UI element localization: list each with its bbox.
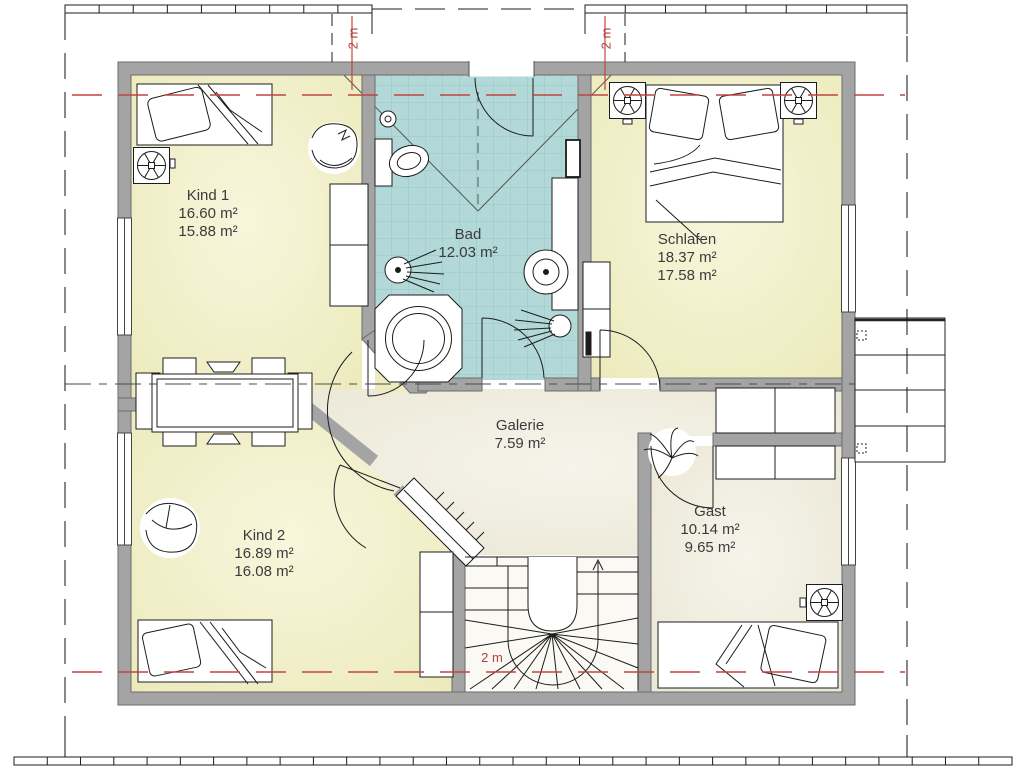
room-label-schlafen: Schlafen 18.37 m² 17.58 m²	[627, 231, 747, 285]
room-area-gross: 16.89 m²	[204, 545, 324, 563]
wall-stair-left	[452, 549, 465, 692]
dormer-dashed-lines	[332, 14, 625, 62]
room-label-gast: Gast 10.14 m² 9.65 m²	[650, 503, 770, 557]
room-name: Kind 1	[148, 187, 268, 205]
kind1-desk-lower	[330, 245, 368, 306]
room-area-gross: 10.14 m²	[650, 521, 770, 539]
ruler-top-left	[65, 5, 372, 13]
room-area-net: 17.58 m²	[627, 267, 747, 285]
kind1-plant-fan	[134, 148, 170, 184]
room-area-net: 15.88 m²	[148, 223, 268, 241]
kind1-fan-tab	[170, 159, 175, 168]
schlafen-fan-left	[610, 83, 646, 119]
dimension-label-stairs: 2 m	[472, 650, 512, 665]
boundary-stubs-bottom	[65, 735, 907, 757]
kind1-desk-upper	[330, 184, 368, 245]
room-label-bad: Bad 12.03 m²	[408, 226, 528, 262]
gast-fan	[807, 585, 843, 621]
bad-wall-cabinet	[566, 140, 580, 177]
room-area-gross: 7.59 m²	[460, 435, 580, 453]
room-name: Schlafen	[627, 231, 747, 249]
room-label-kind1: Kind 1 16.60 m² 15.88 m²	[148, 187, 268, 241]
room-label-galerie: Galerie 7.59 m²	[460, 417, 580, 453]
gast-fan-tab	[800, 598, 806, 607]
kind2-wardrobe	[420, 552, 453, 677]
room-label-kind2: Kind 2 16.89 m² 16.08 m²	[204, 527, 324, 581]
bathtub-basin-inner	[393, 314, 445, 364]
room-area-net: 16.08 m²	[204, 563, 324, 581]
wall-gast-top	[713, 433, 842, 446]
room-name: Bad	[408, 226, 528, 244]
floor-plan-canvas: Kind 1 16.60 m² 15.88 m² Bad 12.03 m² Sc…	[0, 0, 1024, 768]
schlafen-fan-left-tab	[623, 119, 632, 124]
boundary-stubs-top	[65, 13, 907, 34]
balcony-deck	[855, 318, 945, 462]
dimension-label-dormer-left: 2 m	[346, 19, 361, 59]
schlafen-fan-right	[781, 83, 817, 119]
shower-head-right	[549, 315, 571, 337]
room-name: Gast	[650, 503, 770, 521]
stair-landing	[528, 557, 577, 631]
bad-top-door-opening	[469, 61, 534, 77]
schlafen-wardrobe-handle	[586, 332, 591, 355]
wall-gast-left	[638, 433, 651, 692]
room-name: Galerie	[460, 417, 580, 435]
room-name: Kind 2	[204, 527, 324, 545]
room-area-net: 9.65 m²	[650, 539, 770, 557]
dining-table	[152, 374, 298, 432]
floor-plan-drawing	[0, 0, 1024, 768]
room-area-gross: 18.37 m²	[627, 249, 747, 267]
shower-head-left-dot	[396, 268, 401, 273]
room-area-gross: 16.60 m²	[148, 205, 268, 223]
sink-drain	[544, 270, 549, 275]
toilet-brush-inner	[385, 116, 391, 122]
room-area-gross: 12.03 m²	[408, 244, 528, 262]
wall-schlafen-bottom-stub	[591, 378, 600, 391]
schlafen-fan-right-tab	[794, 119, 803, 124]
dimension-label-dormer-right: 2 m	[599, 19, 614, 59]
